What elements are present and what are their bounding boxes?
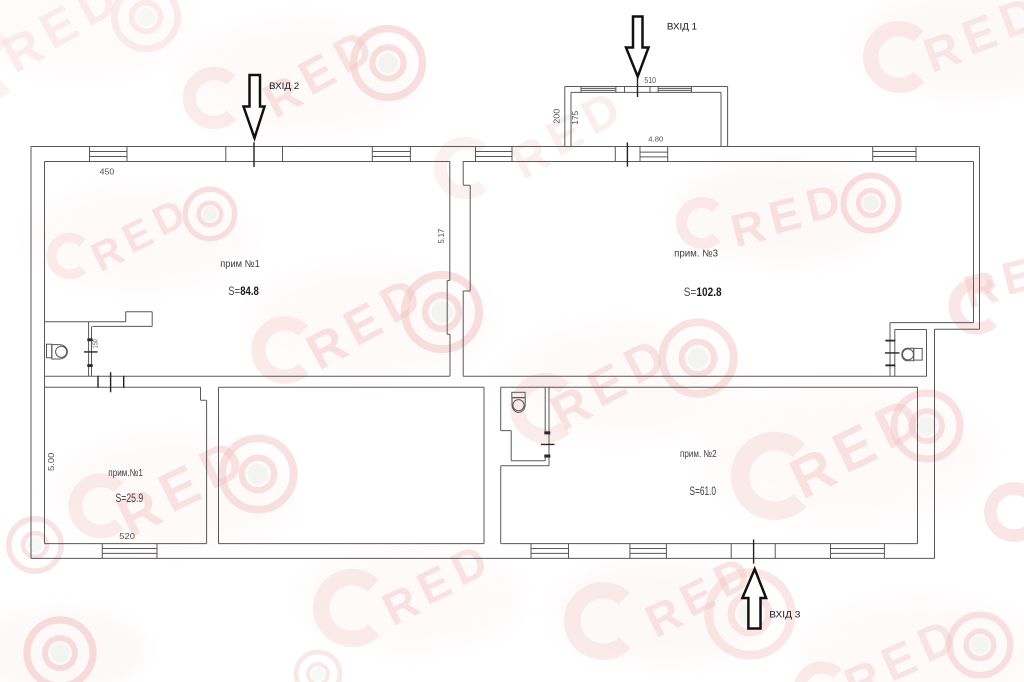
svg-text:ВХІД 1: ВХІД 1 [667,20,697,31]
svg-text:S=84.8: S=84.8 [228,284,259,298]
svg-text:прим.№1: прим.№1 [108,468,143,479]
svg-text:S=61.0: S=61.0 [690,486,717,498]
svg-text:ВХІД 2: ВХІД 2 [269,80,299,91]
svg-text:175: 175 [570,111,580,125]
svg-text:150: 150 [91,339,100,348]
svg-text:4.80: 4.80 [648,135,663,144]
svg-text:прим. №2: прим. №2 [680,449,717,460]
svg-text:450: 450 [100,166,115,176]
svg-text:200: 200 [551,108,561,123]
svg-text:S=25.9: S=25.9 [116,493,144,505]
svg-text:5.17: 5.17 [437,228,446,243]
svg-text:510: 510 [644,75,656,85]
svg-text:прим №1: прим №1 [220,259,260,270]
svg-text:прим. №3: прим. №3 [674,249,718,260]
svg-text:ВХІД 3: ВХІД 3 [769,608,800,619]
svg-text:520: 520 [119,531,135,541]
svg-text:5.00: 5.00 [46,452,56,471]
svg-text:S=102.8: S=102.8 [684,285,722,299]
